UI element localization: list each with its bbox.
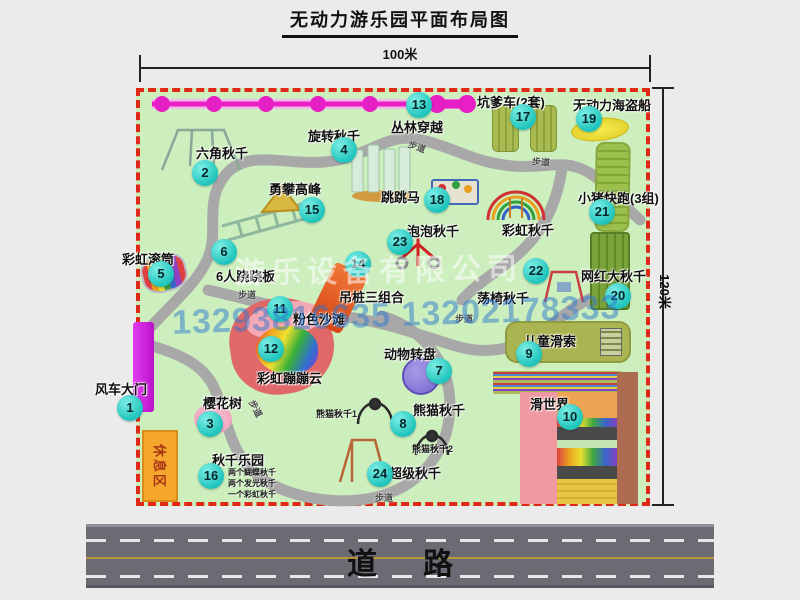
attraction-badge-2: 2 <box>192 160 218 186</box>
attraction-badge-1: 1 <box>117 395 143 421</box>
attraction-badge-8: 8 <box>390 411 416 437</box>
rest-area: 休息区 <box>142 430 178 502</box>
slide-world-brown-band-icon <box>617 372 638 504</box>
walkway-label-2: 步道 <box>531 154 550 169</box>
attraction-badge-21: 21 <box>589 199 615 225</box>
attraction-badge-7: 7 <box>426 358 452 384</box>
page-title-text: 无动力游乐园平面布局图 <box>282 6 518 38</box>
attraction-label-24: 超级秋千 <box>389 463 441 482</box>
attraction-badge-15: 15 <box>299 197 325 223</box>
attraction-badge-17: 17 <box>510 104 536 130</box>
attraction-label-1: 风车大门 <box>95 379 147 398</box>
attraction-badge-19: 19 <box>576 106 602 132</box>
attraction-label-3: 樱花树 <box>203 393 242 412</box>
swing-park-item-1: 两个蝴蝶秋千 <box>228 468 276 478</box>
attraction-label-23: 泡泡秋千 <box>407 221 459 240</box>
swing-park-item-2: 两个发光秋千 <box>228 479 276 489</box>
screenshot-root: 无动力游乐园平面布局图 100米 120米 <box>0 0 800 600</box>
attraction-badge-6: 6 <box>211 239 237 265</box>
dimension-width-tick-right <box>649 55 651 82</box>
attraction-label-7: 动物转盘 <box>384 344 436 363</box>
dimension-width-tick-left <box>139 55 141 82</box>
attraction-badge-5: 5 <box>148 261 174 287</box>
dimension-width-label: 100米 <box>360 44 440 63</box>
dimension-height-label: 120米 <box>656 274 675 309</box>
dimension-height-tick-top <box>652 87 674 89</box>
road-label: 道路 <box>86 539 714 583</box>
watermark-company: 游乐设备有限公司 <box>235 243 524 292</box>
attraction-badge-13: 13 <box>406 92 432 118</box>
attraction-badge-16: 16 <box>198 463 224 489</box>
walkway-label-6: 步道 <box>375 491 393 504</box>
attraction-badge-9: 9 <box>516 341 542 367</box>
attraction-label-18: 跳跳马 <box>381 187 420 206</box>
attraction-badge-3: 3 <box>197 411 223 437</box>
attraction-label-8: 熊猫秋千 <box>413 400 465 419</box>
panda-swing-1-label: 熊猫秋千1 <box>316 407 357 420</box>
swing-park-item-3: 一个彩虹秋千 <box>228 490 276 500</box>
attraction-badge-10: 10 <box>557 404 583 430</box>
page-title: 无动力游乐园平面布局图 <box>0 6 800 38</box>
attraction-label-20: 网红大秋千 <box>581 266 646 285</box>
attraction-badge-18: 18 <box>424 187 450 213</box>
dimension-height-tick-bottom <box>652 504 674 506</box>
attraction-label-15: 勇攀高峰 <box>269 179 321 198</box>
attraction-badge-12: 12 <box>258 336 284 362</box>
rainbow-swing-label: 彩虹秋千 <box>502 220 554 239</box>
dimension-width-line <box>140 67 650 69</box>
attraction-badge-22: 22 <box>523 258 549 284</box>
slide-world-lanes-icon <box>493 371 622 394</box>
kids-zipline-tower-icon <box>600 328 622 356</box>
panda-swing-2-label: 熊猫秋千2 <box>412 442 453 455</box>
rest-area-label: 休息区 <box>151 443 170 488</box>
attraction-label-17: 坑爹车(2套) <box>477 92 545 111</box>
attraction-badge-4: 4 <box>331 137 357 163</box>
attraction-badge-24: 24 <box>367 461 393 487</box>
attraction-label-12: 彩虹蹦蹦云 <box>257 368 322 387</box>
road: 道路 <box>86 524 714 588</box>
attraction-label-13: 丛林穿越 <box>391 117 443 136</box>
